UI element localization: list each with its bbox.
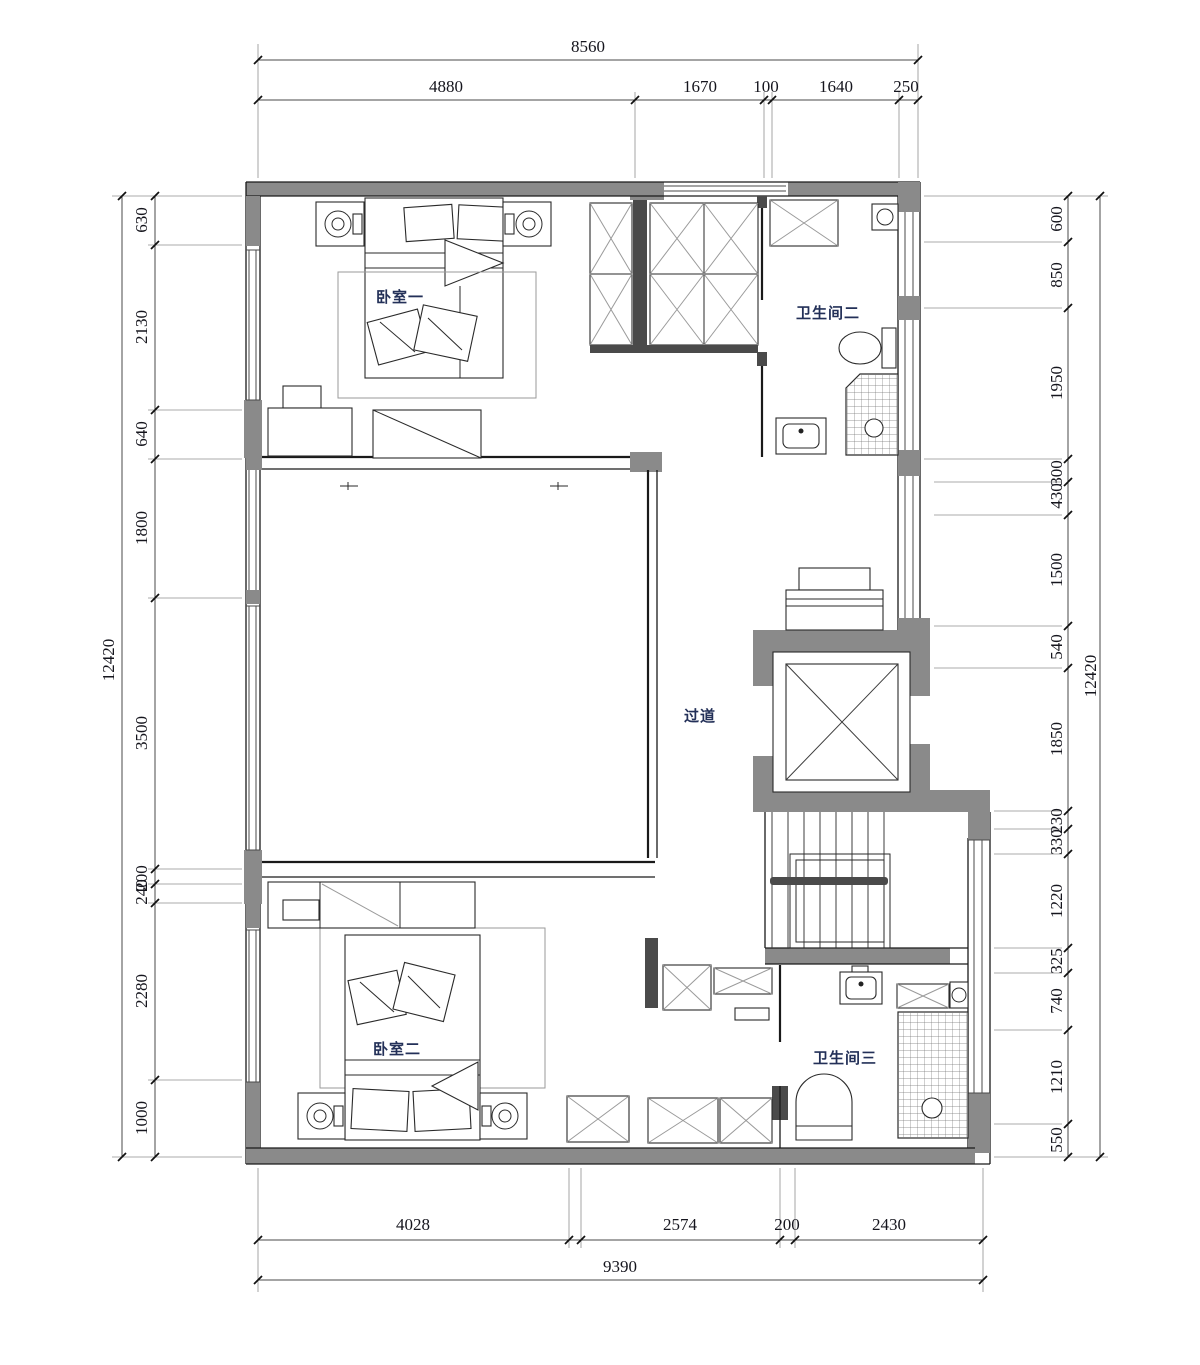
- dim-right-5: 430: [1047, 483, 1066, 509]
- dim-right-7: 540: [1047, 634, 1066, 660]
- window-bedroom1-left: [246, 250, 260, 400]
- dim-left-1: 630: [132, 207, 151, 233]
- bath3-closet: [897, 984, 949, 1008]
- dim-bottom-total: 9390: [603, 1257, 637, 1276]
- dim-bottom-2: 2574: [663, 1215, 698, 1234]
- dim-left-total: 12420: [99, 639, 118, 682]
- sink-2: [776, 418, 826, 454]
- dim-top-total: 8560: [571, 37, 605, 56]
- sink-3: [840, 966, 882, 1004]
- dim-bottom: 4028 2574 200 2430 9390: [258, 1168, 983, 1292]
- window-bath2-right: [905, 212, 913, 450]
- dim-right-3: 1950: [1047, 366, 1066, 400]
- floor-plan-page: 卧室一 卫生间二 过道 卧室二 卫生间三 8560 4880 1670 100 …: [0, 0, 1200, 1365]
- dim-right-2: 850: [1047, 262, 1066, 288]
- nightstand-1-left: [316, 202, 364, 246]
- hall-closets: [567, 965, 772, 1143]
- dim-left-7: 240: [132, 879, 151, 905]
- bedroom2-label: 卧室二: [373, 1040, 421, 1058]
- dim-right-total: 12420: [1081, 655, 1100, 698]
- dim-left-2: 2130: [132, 310, 151, 344]
- dim-bottom-1: 4028: [396, 1215, 430, 1234]
- nightstand-1-right: [503, 202, 551, 246]
- nightstand-2-right: [480, 1093, 527, 1139]
- dim-right-1: 600: [1047, 206, 1066, 232]
- dim-top-5: 250: [893, 77, 919, 96]
- dim-top: 8560 4880 1670 100 1640 250: [258, 37, 919, 178]
- shower-2: [846, 374, 898, 455]
- dim-right-10: 330: [1047, 829, 1066, 855]
- toilet-2: [839, 328, 896, 368]
- dim-top-4: 1640: [819, 77, 853, 96]
- dim-left: 630 2130 640 1800 3500 200 240 2280 1000…: [99, 196, 242, 1157]
- dim-right-4: 300: [1047, 460, 1066, 486]
- dim-top-3: 100: [753, 77, 779, 96]
- dim-right-6: 1500: [1047, 553, 1066, 587]
- bedroom2-furniture: [268, 882, 545, 1140]
- window-living-left: [246, 470, 260, 850]
- curtain-marks: [340, 482, 568, 490]
- dim-right-8: 1850: [1047, 722, 1066, 756]
- bathroom2-fixtures: [770, 200, 898, 455]
- window-bedroom2-left: [246, 930, 260, 1082]
- bath3-washer: [950, 982, 968, 1008]
- dim-left-5: 3500: [132, 716, 151, 750]
- bathroom3-label: 卫生间三: [813, 1049, 877, 1067]
- toilet-3: [796, 1074, 852, 1140]
- bath2-closet: [770, 200, 838, 246]
- floor-plan-drawing: 卧室一 卫生间二 过道 卧室二 卫生间三 8560 4880 1670 100 …: [0, 0, 1200, 1365]
- staircase: [765, 812, 890, 948]
- dim-right-15: 550: [1047, 1127, 1066, 1153]
- dresser-above-elevator: [786, 568, 883, 630]
- wardrobe-top: [590, 200, 758, 353]
- dim-bottom-3: 200: [774, 1215, 800, 1234]
- dim-left-3: 640: [132, 421, 151, 447]
- cabinet-1: [268, 386, 352, 456]
- shower-3: [898, 1012, 968, 1138]
- dim-bottom-4: 2430: [872, 1215, 906, 1234]
- bathroom2-label: 卫生间二: [796, 304, 860, 322]
- elevator-shaft: [753, 630, 990, 812]
- window-bath3-right: [968, 840, 990, 1093]
- bath2-washer: [872, 204, 898, 230]
- bench-1: [373, 410, 481, 458]
- dim-top-1: 4880: [429, 77, 463, 96]
- dim-right-11: 1220: [1047, 884, 1066, 918]
- nightstand-2-left: [298, 1093, 345, 1139]
- hallway-label: 过道: [684, 707, 716, 725]
- dim-right-13: 740: [1047, 988, 1066, 1014]
- wardrobe-2: [268, 882, 475, 928]
- window-hall-right: [905, 476, 913, 618]
- dim-left-4: 1800: [132, 511, 151, 545]
- dim-left-8: 2280: [132, 974, 151, 1008]
- dim-left-9: 1000: [132, 1101, 151, 1135]
- bedroom1-furniture: [268, 198, 568, 490]
- dim-right-12: 325: [1047, 948, 1066, 974]
- dim-right-14: 1210: [1047, 1060, 1066, 1094]
- dim-top-2: 1670: [683, 77, 717, 96]
- bedroom1-label: 卧室一: [376, 288, 424, 306]
